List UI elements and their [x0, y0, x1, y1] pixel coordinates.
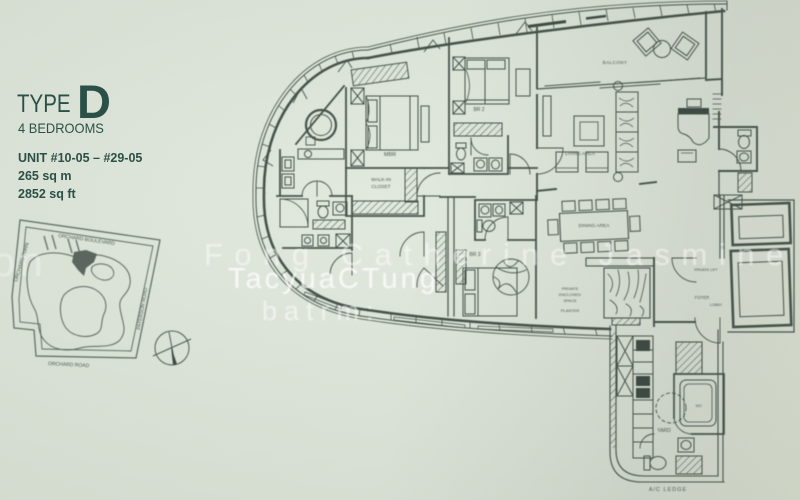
- svg-text:BALCONY: BALCONY: [603, 60, 628, 65]
- svg-text:A/C LEDGE: A/C LEDGE: [649, 487, 687, 493]
- svg-text:LOBBY: LOBBY: [710, 303, 723, 307]
- svg-text:SPACE: SPACE: [563, 298, 577, 303]
- svg-text:CLOSET: CLOSET: [371, 184, 390, 190]
- svg-text:ORCHARD ROAD: ORCHARD ROAD: [48, 361, 90, 369]
- svg-text:ENCLOSED: ENCLOSED: [559, 292, 581, 297]
- svg-text:FOYER: FOYER: [695, 295, 709, 300]
- svg-text:DINING AREA: DINING AREA: [579, 223, 611, 229]
- svg-text:MBR: MBR: [384, 152, 396, 158]
- svg-text:BR 2: BR 2: [473, 107, 484, 113]
- svg-text:WC: WC: [696, 403, 703, 408]
- svg-text:ORCHARD BOULEVARD: ORCHARD BOULEVARD: [58, 233, 116, 247]
- svg-text:PATERSON ROAD: PATERSON ROAD: [136, 287, 149, 330]
- svg-text:PLANTER: PLANTER: [561, 308, 580, 313]
- svg-text:YARD: YARD: [657, 428, 671, 434]
- svg-text:WALK-IN: WALK-IN: [371, 177, 391, 183]
- svg-text:PRIVATE: PRIVATE: [562, 286, 579, 291]
